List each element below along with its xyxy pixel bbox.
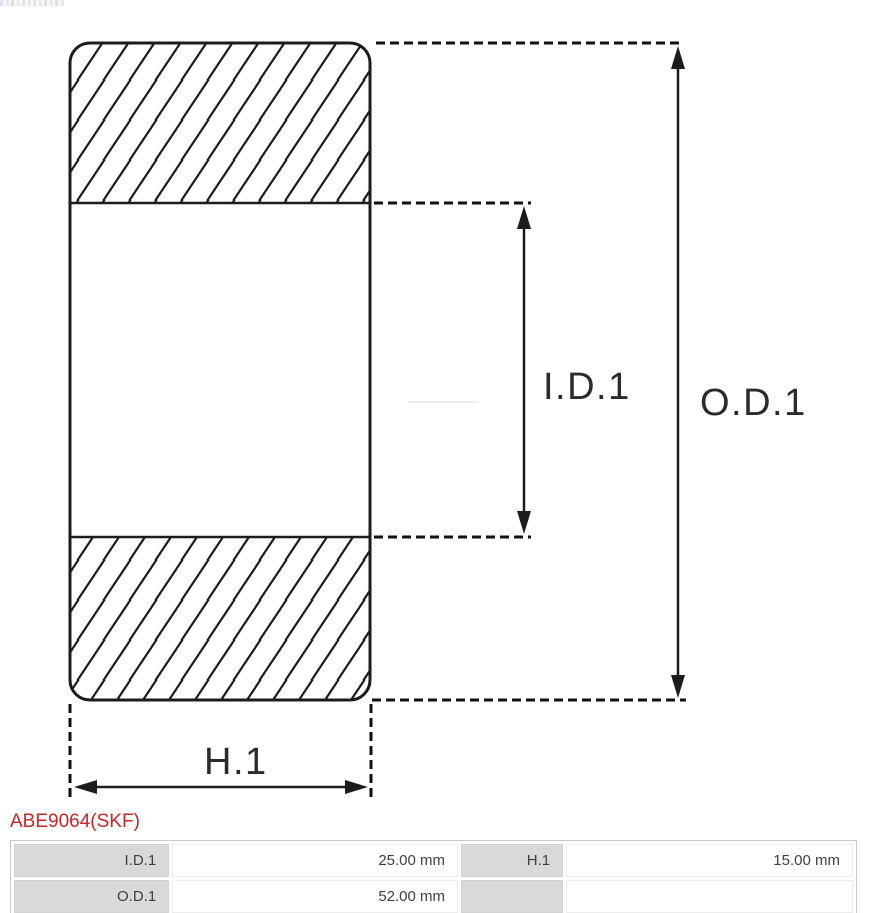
id1-arrowhead-down-icon [517,511,531,534]
spec-value-cell: 15.00 mm [566,844,853,877]
product-drawing-page: I.D.1 O.D.1 H.1 ABE9064(SKF) I.D.1 25.00… [0,0,871,913]
bottom-hatched-section [70,537,370,700]
h1-label: H.1 [204,741,268,783]
od1-dimension-arrow [671,46,685,698]
id1-label: I.D.1 [543,366,631,408]
id1-arrowhead-up-icon [517,206,531,229]
spec-label-cell: I.D.1 [14,844,169,877]
spec-label-cell: H.1 [461,844,563,877]
bearing-cross-section-diagram: I.D.1 O.D.1 H.1 [0,0,871,808]
od1-arrowhead-up-icon [671,46,685,69]
spec-value-cell: 25.00 mm [172,844,458,877]
h1-arrowhead-left-icon [74,780,97,794]
id1-dimension-arrow [517,206,531,534]
spec-value-cell: 52.00 mm [172,880,458,913]
spec-table: I.D.1 25.00 mm H.1 15.00 mm O.D.1 52.00 … [10,840,857,913]
table-row: O.D.1 52.00 mm [14,880,853,913]
spec-label-cell [461,880,563,913]
top-hatched-section [70,43,370,203]
spec-value-cell [566,880,853,913]
h1-arrowhead-right-icon [345,780,368,794]
od1-label: O.D.1 [700,382,807,424]
table-row: I.D.1 25.00 mm H.1 15.00 mm [14,844,853,877]
hatched-ring-sections [70,43,370,700]
spec-label-cell: O.D.1 [14,880,169,913]
part-number: ABE9064(SKF) [10,811,140,833]
od1-arrowhead-down-icon [671,675,685,698]
